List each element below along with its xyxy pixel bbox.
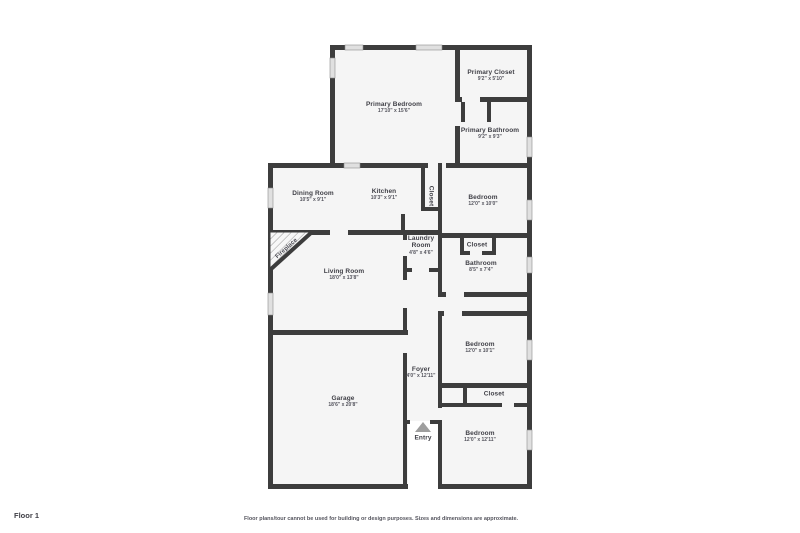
floor-plan-drawing [0,0,800,533]
entry-arrow-icon [415,422,431,432]
floor-plan-page: Primary Bedroom 17'10" x 15'6" Primary C… [0,0,800,533]
room-fills [268,45,532,488]
disclaimer-text: Floor plans/tour cannot be used for buil… [0,516,762,522]
